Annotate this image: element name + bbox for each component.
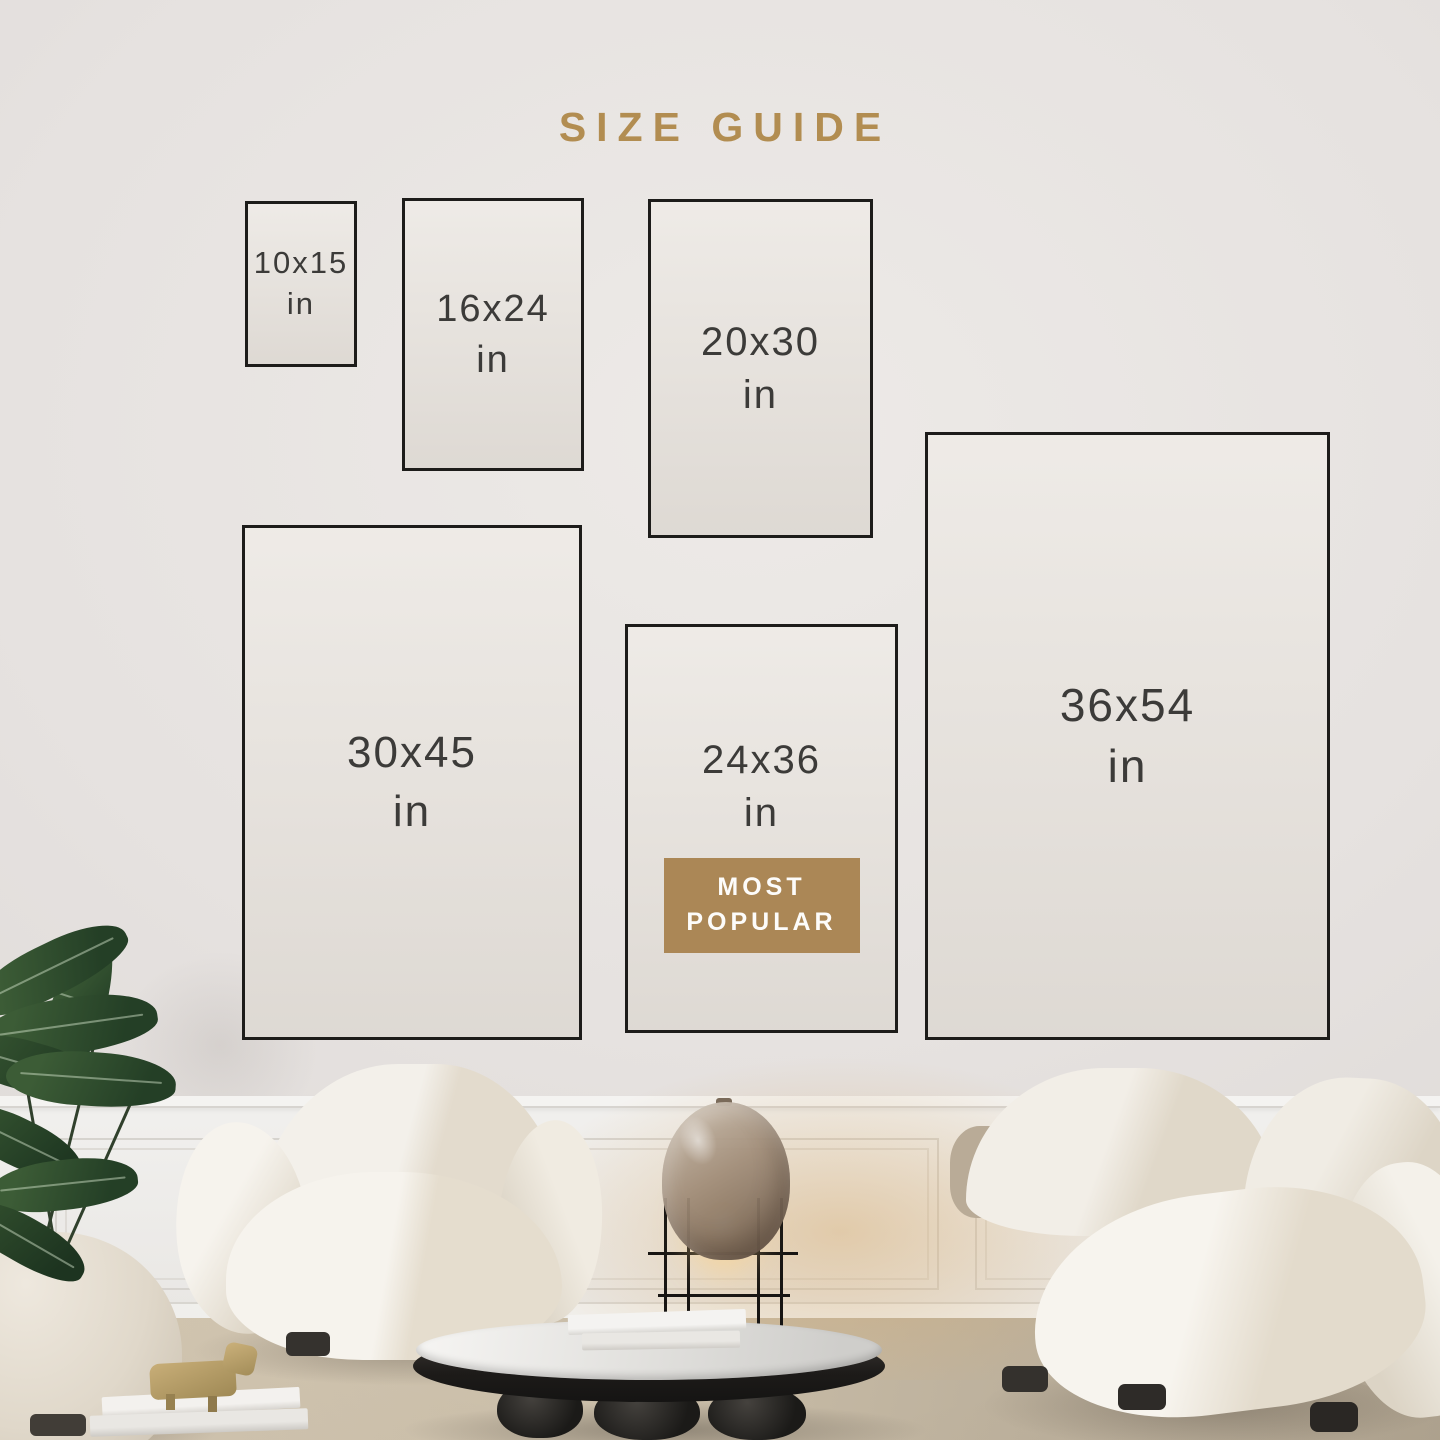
size-label-16x24: 16x24 in	[436, 284, 550, 384]
size-unit: in	[436, 335, 550, 385]
size-box-30x45: 30x45 in	[242, 525, 582, 1040]
size-unit: in	[254, 284, 348, 325]
size-unit: in	[347, 783, 477, 841]
size-box-36x54: 36x54 in	[925, 432, 1330, 1040]
size-value: 16x24	[436, 284, 550, 334]
floor-lamp-glass-shade	[662, 1102, 790, 1260]
size-label-30x45: 30x45 in	[347, 724, 477, 840]
size-box-10x15: 10x15 in	[245, 201, 357, 367]
size-label-20x30: 20x30 in	[701, 316, 820, 422]
pouf-foot	[30, 1414, 86, 1436]
size-value: 20x30	[701, 316, 820, 369]
size-unit: in	[702, 787, 821, 840]
book-on-table	[582, 1331, 740, 1351]
floor-lamp-crossbar	[658, 1294, 790, 1297]
size-value: 30x45	[347, 724, 477, 782]
size-label-24x36: 24x36 in	[702, 734, 821, 840]
armchair-foot	[286, 1332, 330, 1356]
most-popular-badge: MOST POPULAR	[664, 858, 860, 953]
sofa-foot	[1002, 1366, 1048, 1392]
size-value: 36x54	[1060, 675, 1195, 736]
size-guide-mockup: SIZE GUIDE 10x15 in 16x24 in 20x30 in 30…	[0, 0, 1440, 1440]
size-box-24x36: 24x36 in MOST POPULAR	[625, 624, 898, 1033]
size-box-16x24: 16x24 in	[402, 198, 584, 471]
page-title: SIZE GUIDE	[0, 104, 1440, 151]
size-value: 10x15	[254, 243, 348, 284]
size-box-20x30: 20x30 in	[648, 199, 873, 538]
size-unit: in	[1060, 736, 1195, 797]
wooden-animal-figurine-leg	[208, 1396, 217, 1412]
wooden-animal-figurine-head	[221, 1341, 259, 1377]
wooden-animal-figurine-leg	[166, 1394, 175, 1410]
size-unit: in	[701, 369, 820, 422]
sofa-foot	[1310, 1402, 1358, 1432]
size-label-10x15: 10x15 in	[254, 243, 348, 325]
size-value: 24x36	[702, 734, 821, 787]
size-label-36x54: 36x54 in	[1060, 675, 1195, 796]
sofa-foot	[1118, 1384, 1166, 1410]
